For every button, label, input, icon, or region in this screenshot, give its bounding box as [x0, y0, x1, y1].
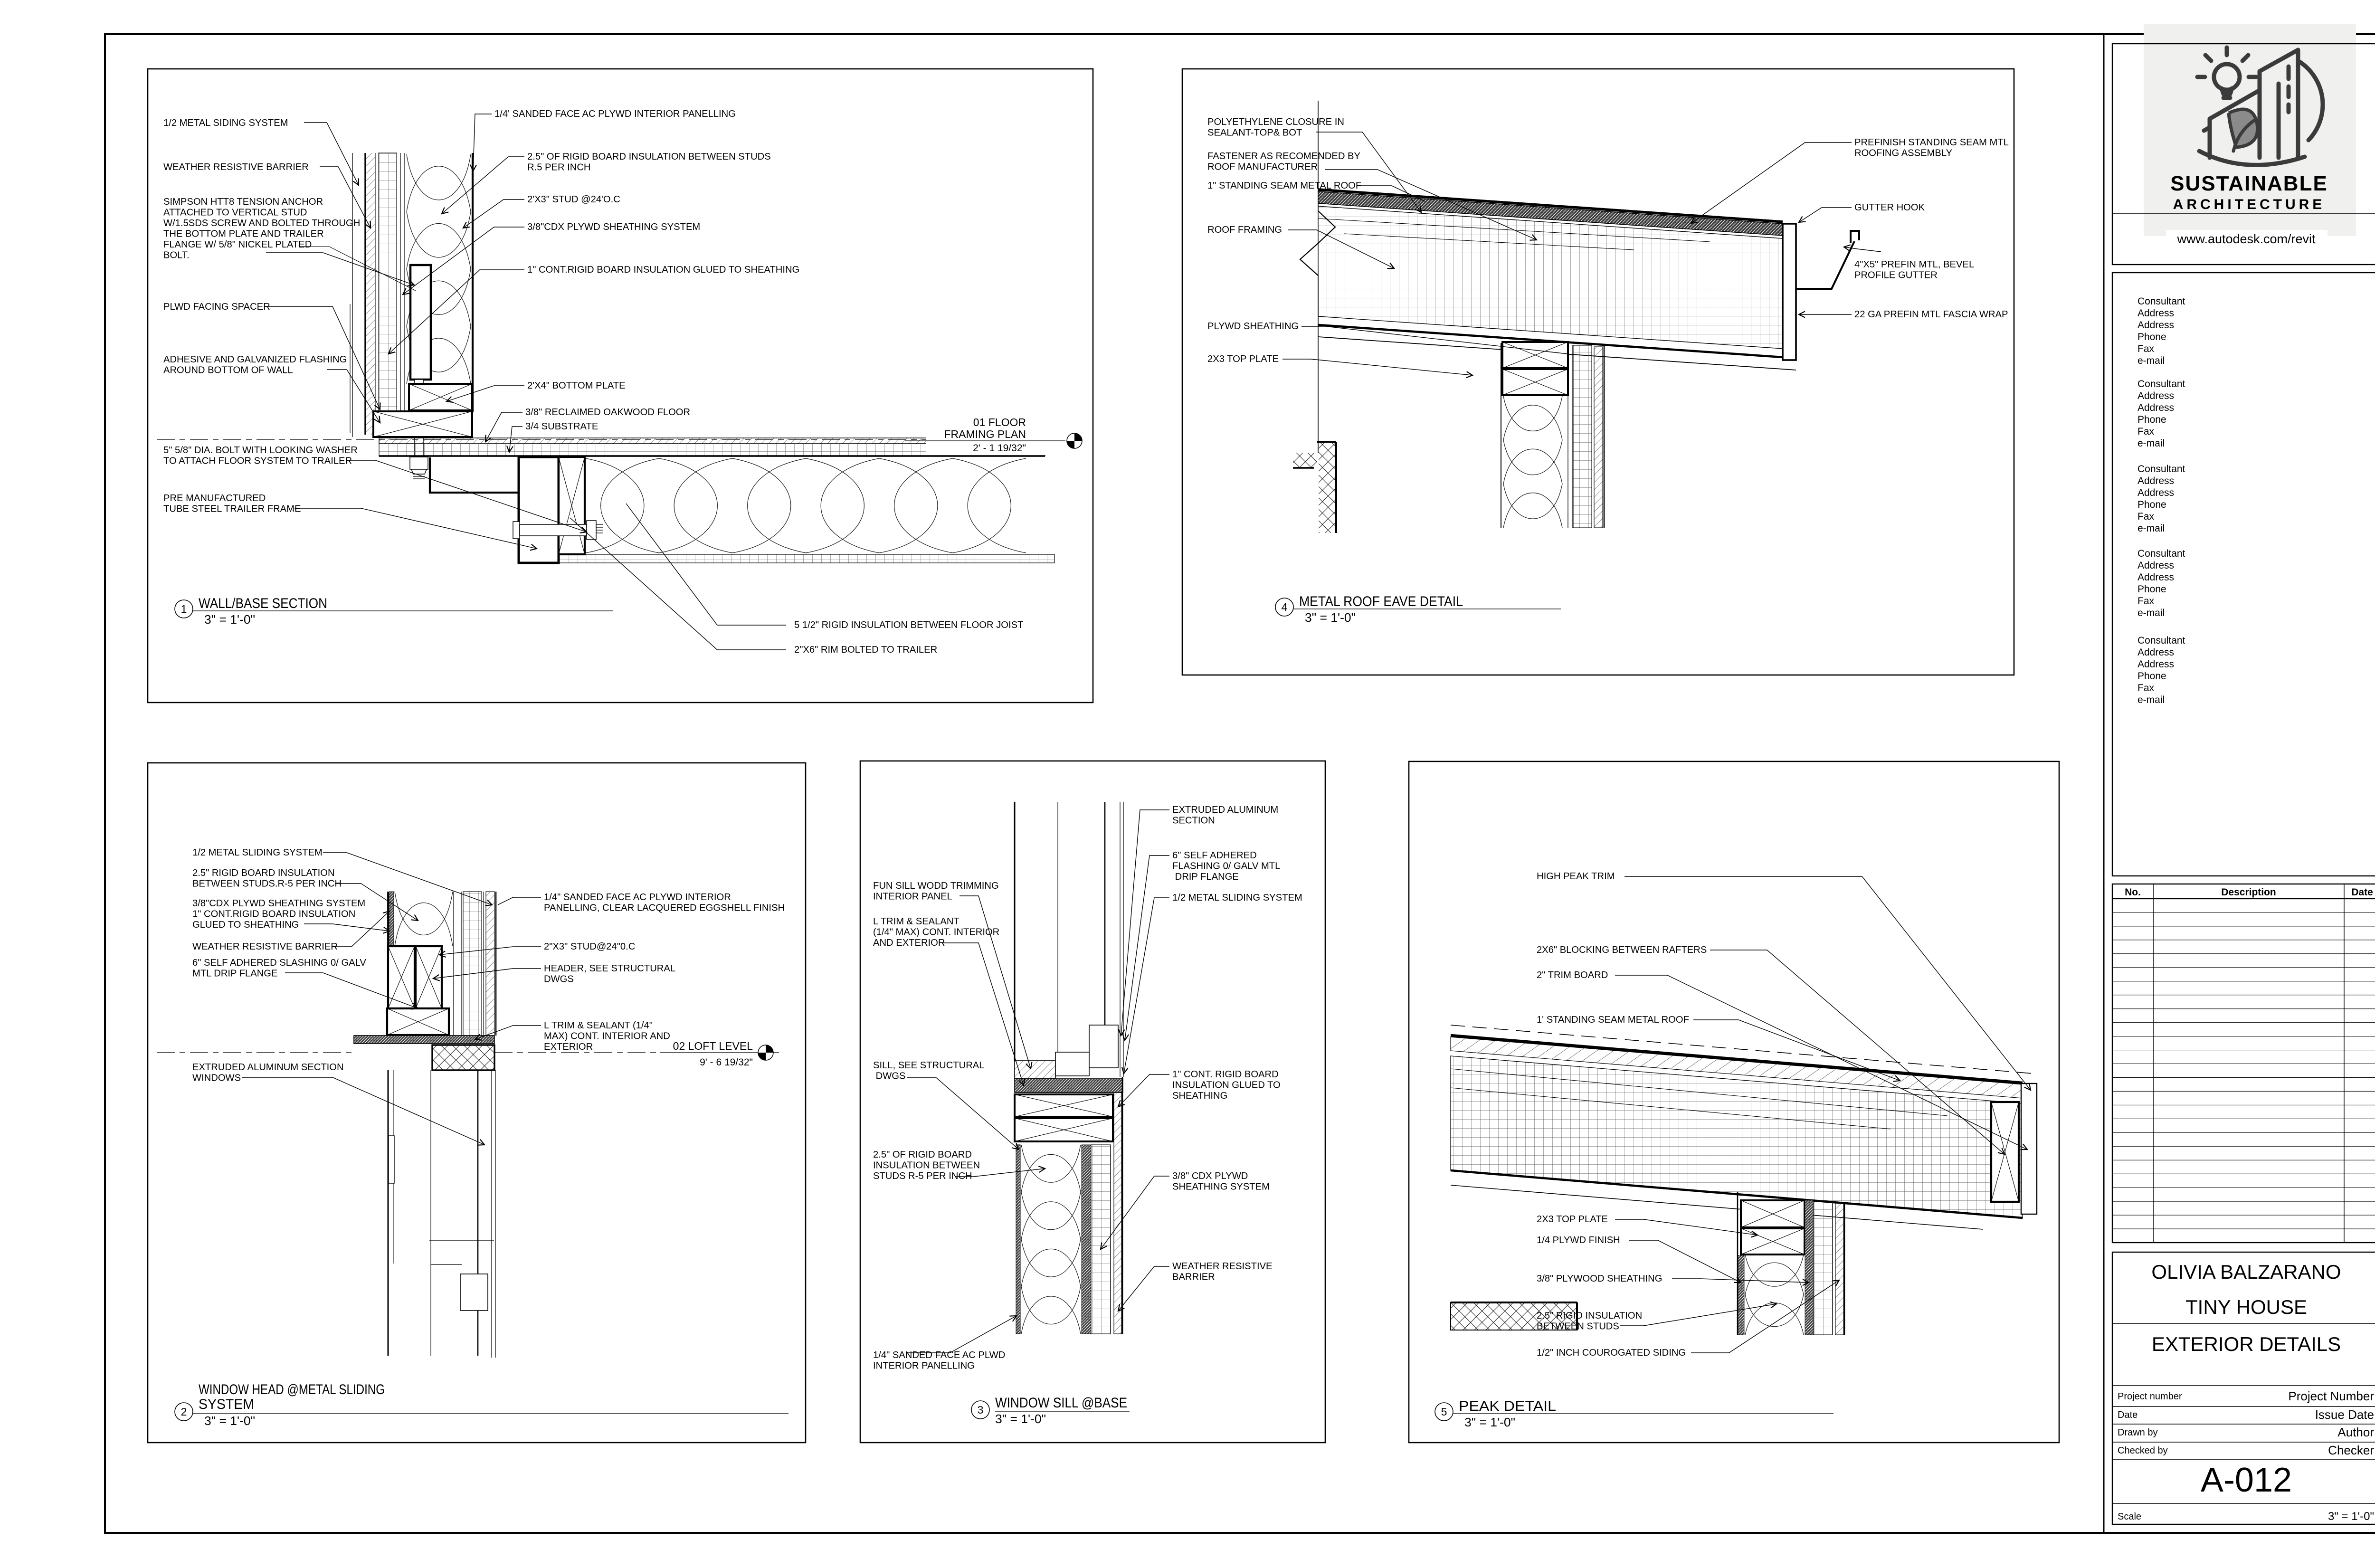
svg-text:3" = 1'-0": 3" = 1'-0" — [1464, 1415, 1515, 1429]
svg-text:ROOF FRAMING: ROOF FRAMING — [1207, 225, 1282, 235]
svg-text:3/8" RECLAIMED OAKWOOD FLOOR: 3/8" RECLAIMED OAKWOOD FLOOR — [525, 407, 690, 418]
svg-text:EXTERIOR DETAILS: EXTERIOR DETAILS — [2152, 1333, 2341, 1355]
svg-text:1" STANDING SEAM METAL ROOF: 1" STANDING SEAM METAL ROOF — [1207, 181, 1361, 191]
svg-text:2"X6" RIM BOLTED TO TRAILER: 2"X6" RIM BOLTED TO TRAILER — [794, 645, 937, 655]
svg-text:5" 5/8" DIA. BOLT WITH LOOKING: 5" 5/8" DIA. BOLT WITH LOOKING WASHERTO … — [163, 445, 358, 466]
svg-text:WINDOW HEAD @METAL SLIDING: WINDOW HEAD @METAL SLIDING — [199, 1382, 385, 1397]
svg-text:2"X3" STUD@24"0.C: 2"X3" STUD@24"0.C — [544, 941, 635, 952]
svg-text:ARCHITECTURE: ARCHITECTURE — [2173, 197, 2326, 212]
svg-text:22 GA PREFIN MTL FASCIA WRAP: 22 GA PREFIN MTL FASCIA WRAP — [1854, 309, 2008, 320]
svg-text:Description: Description — [2221, 887, 2276, 898]
svg-text:GUTTER HOOK: GUTTER HOOK — [1854, 202, 1925, 213]
svg-text:Project number: Project number — [2118, 1391, 2182, 1402]
svg-text:3" = 1'-0": 3" = 1'-0" — [204, 1414, 255, 1428]
svg-text:5: 5 — [1441, 1406, 1447, 1418]
svg-text:WEATHER RESISTIVE BARRIER: WEATHER RESISTIVE BARRIER — [192, 941, 338, 952]
svg-text:OLIVIA BALZARANO: OLIVIA BALZARANO — [2151, 1261, 2341, 1283]
svg-text:1/2 METAL SLIDING SYSTEM: 1/2 METAL SLIDING SYSTEM — [1172, 893, 1302, 903]
svg-text:2X6" BLOCKING BETWEEN RAFTERS: 2X6" BLOCKING BETWEEN RAFTERS — [1537, 945, 1707, 955]
svg-text:2: 2 — [181, 1406, 187, 1418]
svg-text:www.autodesk.com/revit: www.autodesk.com/revit — [2176, 232, 2316, 246]
svg-text:3" = 1'-0": 3" = 1'-0" — [1305, 610, 1356, 625]
svg-text:1/2 METAL SLIDING SYSTEM: 1/2 METAL SLIDING SYSTEM — [192, 847, 323, 858]
svg-text:4: 4 — [1282, 601, 1288, 613]
svg-text:2' - 1 19/32": 2' - 1 19/32" — [973, 443, 1026, 454]
svg-text:Scale: Scale — [2118, 1511, 2141, 1522]
svg-text:1' STANDING SEAM METAL ROOF: 1' STANDING SEAM METAL ROOF — [1537, 1015, 1689, 1025]
svg-text:2.5" RIGID BOARD INSULATIONBET: 2.5" RIGID BOARD INSULATIONBETWEEN STUDS… — [192, 868, 342, 889]
svg-text:FRAMING PLAN: FRAMING PLAN — [944, 428, 1026, 440]
svg-text:2'X4" BOTTOM PLATE: 2'X4" BOTTOM PLATE — [527, 380, 626, 391]
svg-text:3" = 1'-0": 3" = 1'-0" — [204, 612, 255, 627]
svg-text:1/2" INCH COUROGATED SIDING: 1/2" INCH COUROGATED SIDING — [1537, 1348, 1686, 1358]
svg-text:3" = 1'-0": 3" = 1'-0" — [2328, 1510, 2374, 1523]
svg-text:1/2 METAL SIDING SYSTEM: 1/2 METAL SIDING SYSTEM — [163, 118, 288, 128]
svg-text:5 1/2" RIGID INSULATION BETWEE: 5 1/2" RIGID INSULATION BETWEEN FLOOR JO… — [794, 620, 1023, 630]
svg-text:2" TRIM BOARD: 2" TRIM BOARD — [1537, 970, 1608, 980]
svg-text:3" = 1'-0": 3" = 1'-0" — [995, 1412, 1046, 1426]
svg-text:TINY HOUSE: TINY HOUSE — [2185, 1296, 2307, 1318]
svg-text:HIGH PEAK TRIM: HIGH PEAK TRIM — [1537, 871, 1615, 882]
svg-text:2'X3" STUD @24'O.C: 2'X3" STUD @24'O.C — [527, 194, 620, 205]
svg-text:1: 1 — [181, 603, 187, 615]
svg-text:WALL/BASE SECTION: WALL/BASE SECTION — [199, 596, 327, 611]
svg-text:1" CONT.RIGID BOARD INSULATION: 1" CONT.RIGID BOARD INSULATION GLUED TO … — [527, 265, 799, 275]
svg-text:A-012: A-012 — [2201, 1461, 2292, 1499]
svg-text:1/4 PLYWD FINISH: 1/4 PLYWD FINISH — [1537, 1235, 1620, 1245]
svg-text:3/8"CDX PLYWD SHEATHING SYSTEM: 3/8"CDX PLYWD SHEATHING SYSTEM — [527, 222, 700, 232]
svg-text:01 FLOOR: 01 FLOOR — [973, 416, 1026, 428]
svg-text:SYSTEM: SYSTEM — [199, 1397, 254, 1412]
svg-text:02 LOFT LEVEL: 02 LOFT LEVEL — [673, 1040, 753, 1052]
svg-text:No.: No. — [2125, 887, 2141, 898]
svg-text:Date: Date — [2118, 1410, 2137, 1420]
svg-text:3/4 SUBSTRATE: 3/4 SUBSTRATE — [525, 421, 598, 432]
svg-text:2X3 TOP PLATE: 2X3 TOP PLATE — [1207, 354, 1279, 364]
svg-text:WEATHER RESISTIVE BARRIER: WEATHER RESISTIVE BARRIER — [163, 162, 309, 172]
svg-text:Drawn by: Drawn by — [2118, 1427, 2157, 1438]
svg-text:1/4' SANDED FACE AC PLYWD INTE: 1/4' SANDED FACE AC PLYWD INTERIOR PANEL… — [494, 109, 736, 119]
svg-text:WINDOW SILL @BASE: WINDOW SILL @BASE — [995, 1395, 1127, 1411]
svg-text:PLYWD SHEATHING: PLYWD SHEATHING — [1207, 321, 1299, 332]
svg-text:3: 3 — [978, 1404, 984, 1416]
svg-text:Author: Author — [2337, 1425, 2374, 1439]
svg-text:Issue Date: Issue Date — [2315, 1407, 2374, 1422]
svg-text:Checker: Checker — [2328, 1443, 2374, 1457]
svg-text:METAL ROOF EAVE DETAIL: METAL ROOF EAVE DETAIL — [1299, 594, 1463, 609]
svg-text:SUSTAINABLE: SUSTAINABLE — [2170, 172, 2328, 195]
svg-text:PEAK DETAIL: PEAK DETAIL — [1459, 1398, 1556, 1414]
svg-text:Date: Date — [2351, 887, 2373, 898]
svg-text:Checked by: Checked by — [2118, 1445, 2168, 1456]
svg-text:PLWD FACING SPACER: PLWD FACING SPACER — [163, 302, 270, 312]
svg-text:2X3 TOP PLATE: 2X3 TOP PLATE — [1537, 1214, 1608, 1225]
svg-text:Project Number: Project Number — [2288, 1389, 2374, 1403]
svg-text:9' - 6 19/32": 9' - 6 19/32" — [700, 1057, 753, 1068]
svg-text:3/8" PLYWOOD SHEATHING: 3/8" PLYWOOD SHEATHING — [1537, 1273, 1662, 1284]
